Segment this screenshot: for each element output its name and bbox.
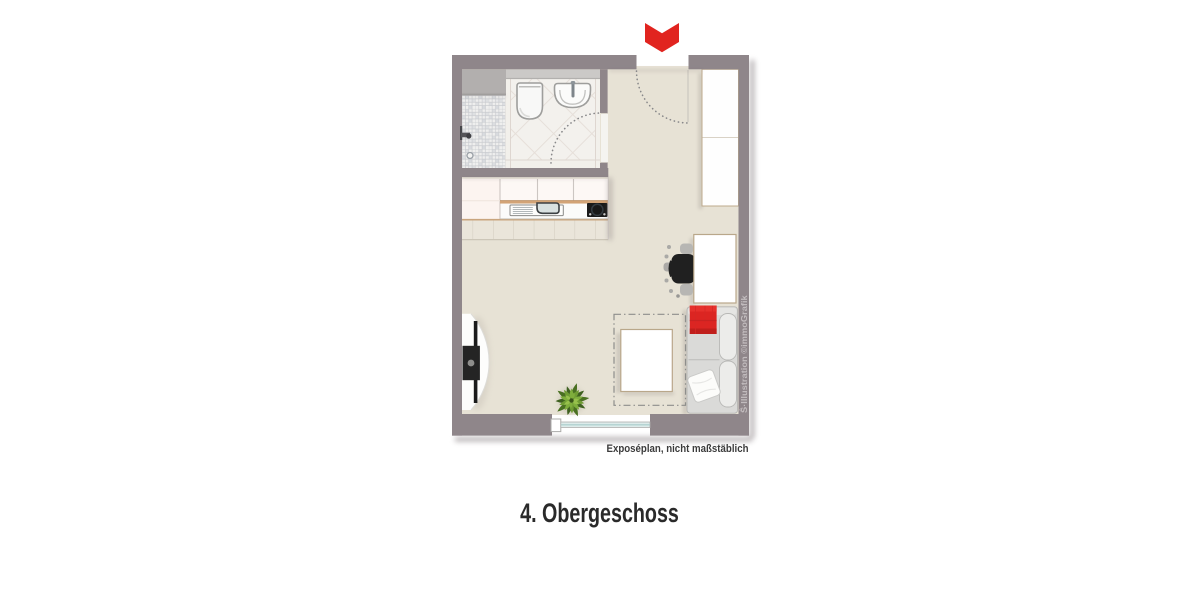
svg-text:4. Obergeschoss: 4. Obergeschoss (520, 499, 679, 529)
svg-text:Exposéplan, nicht maßstäblich: Exposéplan, nicht maßstäblich (607, 443, 749, 455)
svg-text:Ŝ·Illustration ©immoGrafik: Ŝ·Illustration ©immoGrafik (739, 295, 749, 413)
